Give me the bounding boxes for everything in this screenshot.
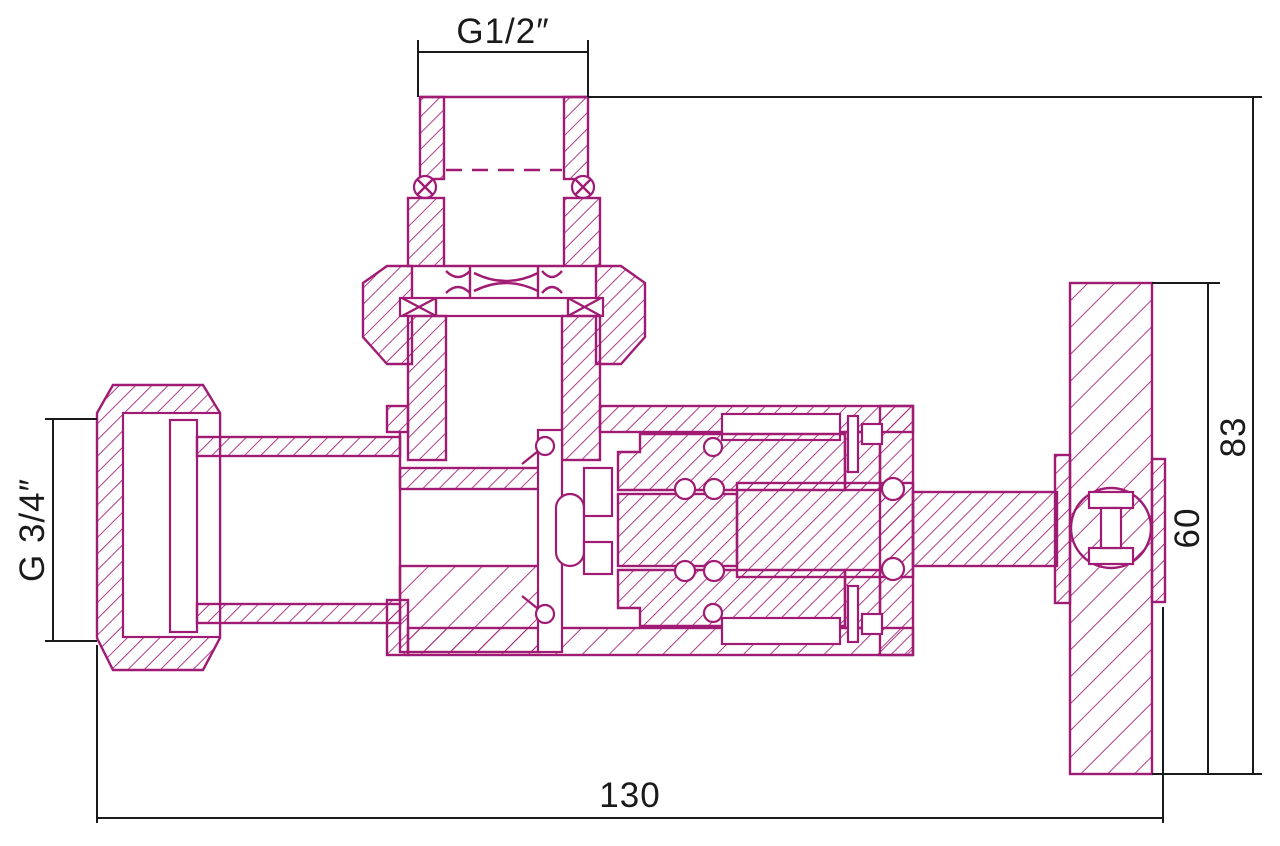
thread-engagement bbox=[444, 266, 564, 297]
left-union-nut bbox=[97, 385, 220, 670]
left-tailpiece-tube bbox=[197, 437, 400, 623]
left-thread-label: G 3/4″ bbox=[13, 478, 52, 582]
valve-technical-drawing: G1/2″ 130 83 60 G 3/4″ bbox=[0, 0, 1280, 846]
valve-part-drawing bbox=[97, 97, 1165, 774]
top-thread-label: G1/2″ bbox=[456, 12, 549, 51]
top-inlet-connection bbox=[408, 97, 600, 266]
body-neck bbox=[408, 316, 600, 460]
hub-collar-left bbox=[1055, 455, 1070, 603]
overall-height-label: 83 bbox=[1214, 417, 1253, 458]
dimension-left-thread bbox=[45, 419, 97, 641]
handwheel bbox=[1055, 283, 1165, 774]
overall-length-label: 130 bbox=[599, 776, 660, 815]
gasket-washer bbox=[400, 298, 603, 316]
hub-collar-right bbox=[1152, 459, 1165, 602]
drawing-svg: G1/2″ 130 83 60 G 3/4″ bbox=[0, 0, 1280, 846]
top-union-nut bbox=[363, 266, 645, 364]
handle-diameter-label: 60 bbox=[1168, 508, 1207, 549]
